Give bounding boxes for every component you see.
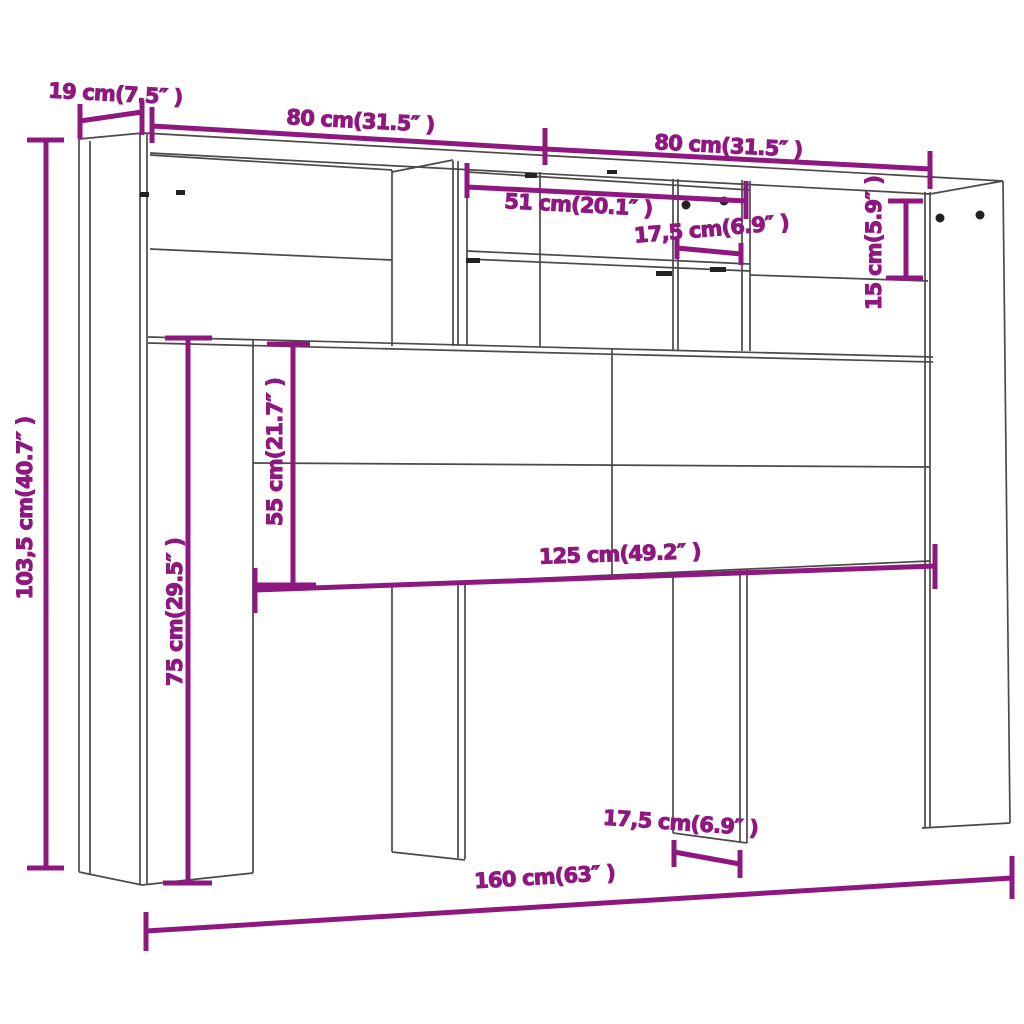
dim-shelf-height-right: 15 cm(5.9″ ) bbox=[862, 176, 923, 310]
dim-label-clearance-height: 75 cm(29.5″ ) bbox=[163, 538, 187, 686]
shelf-pin-hole bbox=[176, 190, 185, 195]
dim-label-depth: 19 cm(7.5″ ) bbox=[48, 79, 183, 110]
shelf-pin-hole bbox=[710, 267, 726, 272]
shelf-pin-hole bbox=[656, 271, 672, 276]
dim-label-leg-width-bottom: 17,5 cm(6.9″ ) bbox=[602, 806, 759, 841]
headboard-cabinet-dimension-diagram: 103,5 cm(40.7″ ) 19 cm(7.5″ ) 80 cm(31.5… bbox=[0, 0, 1024, 1024]
shelf-pin-hole bbox=[525, 173, 537, 178]
dim-clearance-height: 75 cm(29.5″ ) bbox=[163, 338, 212, 883]
dimension-annotations: 103,5 cm(40.7″ ) 19 cm(7.5″ ) 80 cm(31.5… bbox=[13, 79, 1012, 951]
dim-line-shelf-height-right bbox=[886, 201, 923, 278]
dim-label-total-height: 103,5 cm(40.7″ ) bbox=[13, 417, 37, 600]
dim-label-width-left-top: 80 cm(31.5″ ) bbox=[286, 105, 435, 137]
hutch-left-compartment bbox=[150, 155, 453, 346]
dim-label-headboard-height: 55 cm(21.7″ ) bbox=[263, 378, 287, 526]
diagram-page: 103,5 cm(40.7″ ) 19 cm(7.5″ ) 80 cm(31.5… bbox=[0, 0, 1024, 1024]
dim-label-shelf-height-right: 15 cm(5.9″ ) bbox=[862, 176, 886, 310]
dim-headboard-height: 55 cm(21.7″ ) bbox=[256, 344, 316, 585]
dim-total-height: 103,5 cm(40.7″ ) bbox=[13, 140, 64, 868]
shelf-pin-hole bbox=[607, 170, 617, 174]
shelf-pin-hole bbox=[140, 192, 149, 197]
shelf-pin-hole bbox=[466, 258, 480, 263]
dim-line-leg-width-bottom bbox=[674, 840, 740, 878]
shelf-pin-dot bbox=[682, 201, 691, 210]
dim-width-inner: 125 cm(49.2″ ) bbox=[255, 539, 935, 613]
shelf-pin-details bbox=[140, 170, 985, 276]
shelf-pin-dot bbox=[976, 211, 985, 220]
headboard-panel bbox=[142, 340, 930, 885]
dim-depth: 19 cm(7.5″ ) bbox=[48, 79, 183, 139]
right-side-panel bbox=[922, 181, 1010, 828]
dim-label-width-inner: 125 cm(49.2″ ) bbox=[538, 539, 701, 569]
dim-compartment-width-top: 17,5 cm(6.9″ ) bbox=[633, 210, 790, 265]
dim-total-width: 160 cm(63″ ) bbox=[146, 856, 1012, 951]
left-side-panel bbox=[79, 133, 147, 885]
dim-label-compartment-width-top: 17,5 cm(6.9″ ) bbox=[633, 210, 790, 247]
shelf-pin-dot bbox=[936, 214, 945, 223]
dim-label-total-width: 160 cm(63″ ) bbox=[473, 861, 615, 894]
